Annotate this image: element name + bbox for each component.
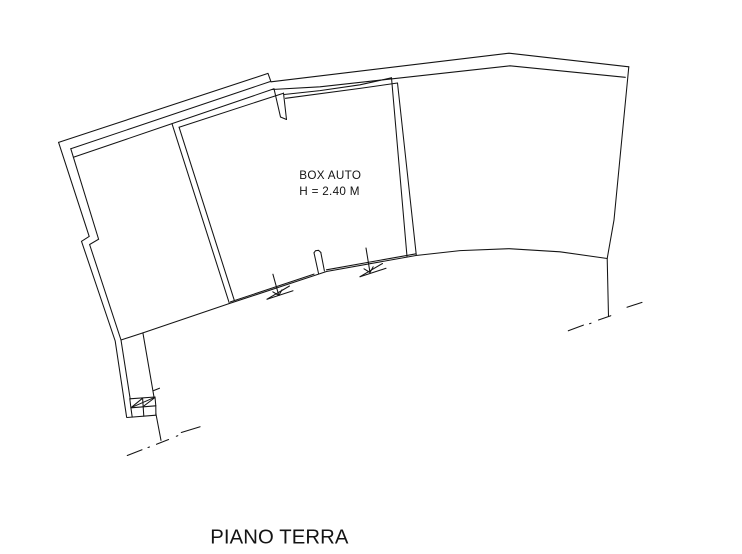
svg-text:BOX AUTO: BOX AUTO xyxy=(299,169,361,182)
svg-text:PIANO TERRA: PIANO TERRA xyxy=(210,526,349,548)
svg-text:H = 2.40 M: H = 2.40 M xyxy=(299,185,360,198)
